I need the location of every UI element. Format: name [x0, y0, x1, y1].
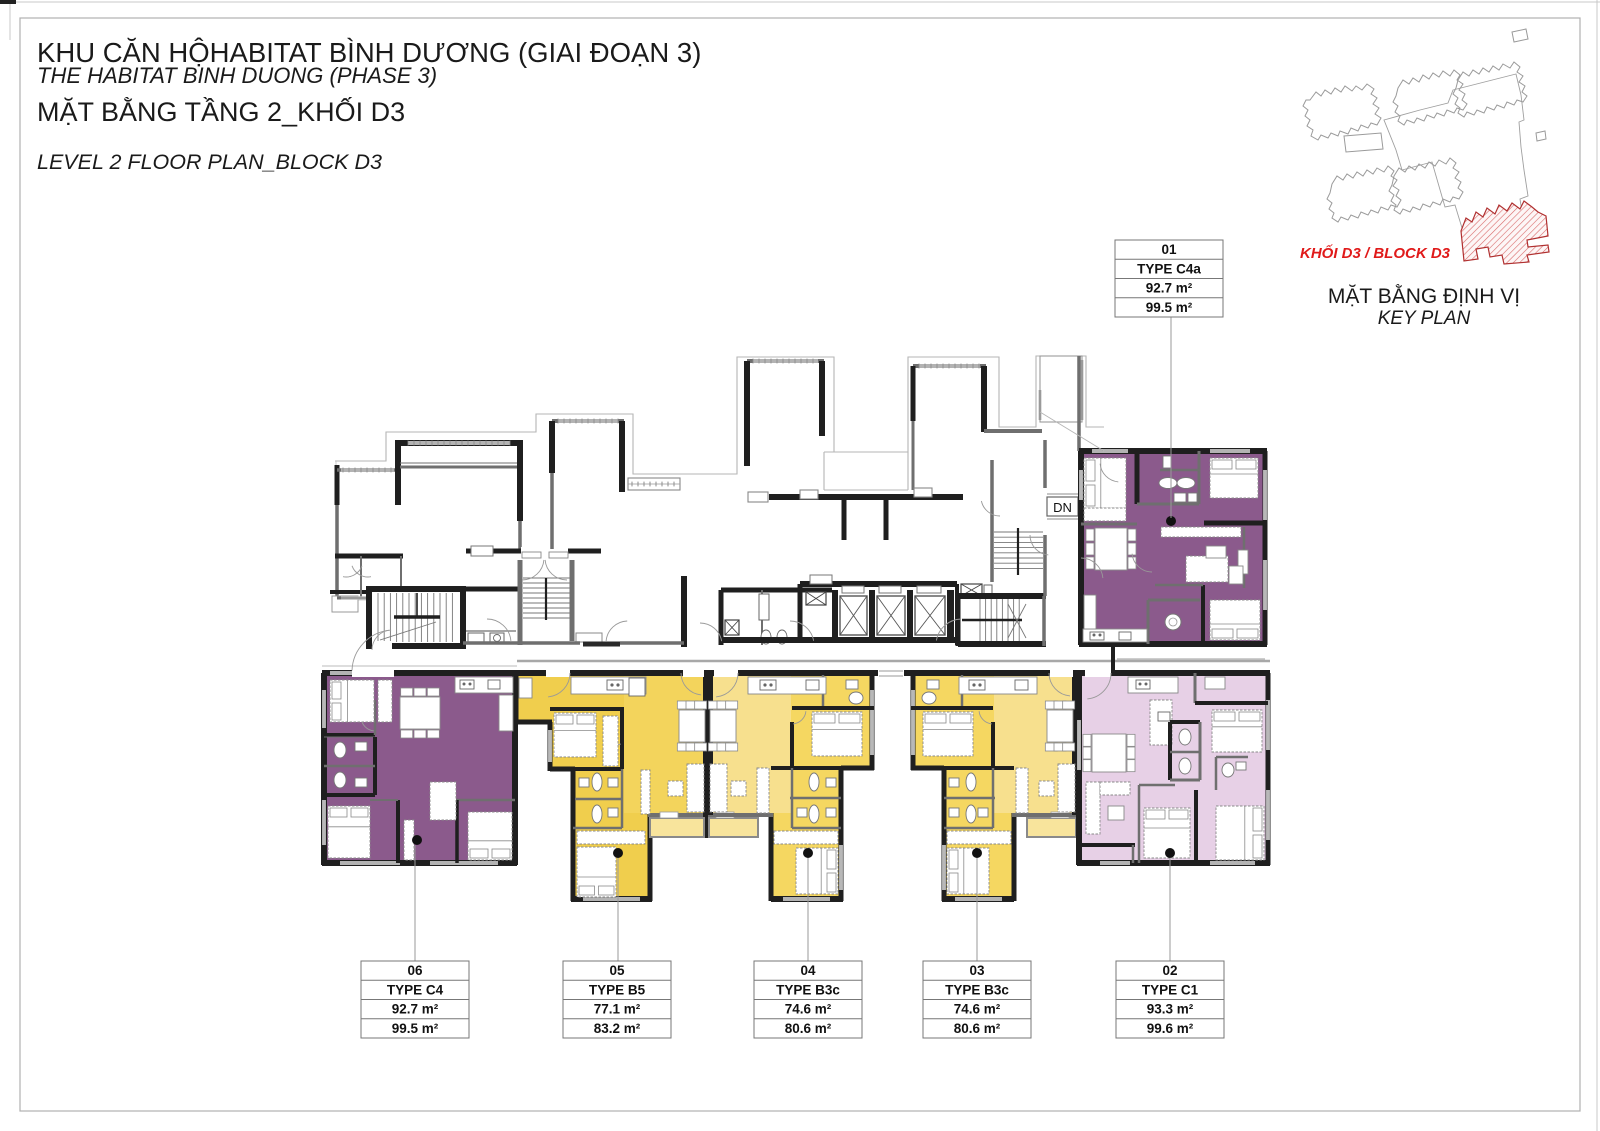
svg-text:TYPE C4: TYPE C4	[387, 982, 444, 997]
svg-text:03: 03	[969, 963, 985, 978]
svg-text:TYPE C4a: TYPE C4a	[1137, 261, 1201, 276]
svg-text:01: 01	[1161, 242, 1177, 257]
svg-text:83.2 m²: 83.2 m²	[594, 1021, 641, 1036]
svg-text:THE HABITAT BINH DUONG (PHASE: THE HABITAT BINH DUONG (PHASE 3)	[37, 63, 437, 88]
svg-text:02: 02	[1162, 963, 1177, 978]
svg-text:KEY PLAN: KEY PLAN	[1378, 308, 1471, 329]
svg-text:04: 04	[800, 963, 816, 978]
svg-text:TYPE B3c: TYPE B3c	[776, 982, 840, 997]
svg-text:MẶT BẰNG ĐỊNH VỊ: MẶT BẰNG ĐỊNH VỊ	[1328, 284, 1520, 308]
svg-text:99.6 m²: 99.6 m²	[1147, 1021, 1194, 1036]
svg-text:KHỐI D3 / BLOCK D3: KHỐI D3 / BLOCK D3	[1300, 244, 1451, 262]
svg-text:93.3 m²: 93.3 m²	[1147, 1002, 1194, 1017]
svg-text:DN: DN	[1053, 500, 1072, 515]
svg-text:05: 05	[609, 963, 625, 978]
svg-text:TYPE C1: TYPE C1	[1142, 982, 1199, 997]
svg-text:74.6 m²: 74.6 m²	[954, 1002, 1001, 1017]
svg-text:TYPE B5: TYPE B5	[589, 982, 646, 997]
svg-text:MẶT BẰNG TẦNG 2_KHỐI D3: MẶT BẰNG TẦNG 2_KHỐI D3	[37, 95, 405, 127]
svg-text:92.7 m²: 92.7 m²	[392, 1002, 439, 1017]
svg-text:99.5 m²: 99.5 m²	[1146, 300, 1193, 315]
svg-text:99.5 m²: 99.5 m²	[392, 1021, 439, 1036]
svg-text:TYPE B3c: TYPE B3c	[945, 982, 1009, 997]
svg-text:77.1 m²: 77.1 m²	[594, 1002, 641, 1017]
svg-text:LEVEL 2 FLOOR PLAN_BLOCK D3: LEVEL 2 FLOOR PLAN_BLOCK D3	[37, 150, 382, 174]
svg-text:80.6 m²: 80.6 m²	[954, 1021, 1001, 1036]
svg-text:74.6 m²: 74.6 m²	[785, 1002, 832, 1017]
svg-text:06: 06	[407, 963, 423, 978]
svg-text:80.6 m²: 80.6 m²	[785, 1021, 832, 1036]
svg-text:92.7 m²: 92.7 m²	[1146, 281, 1193, 296]
